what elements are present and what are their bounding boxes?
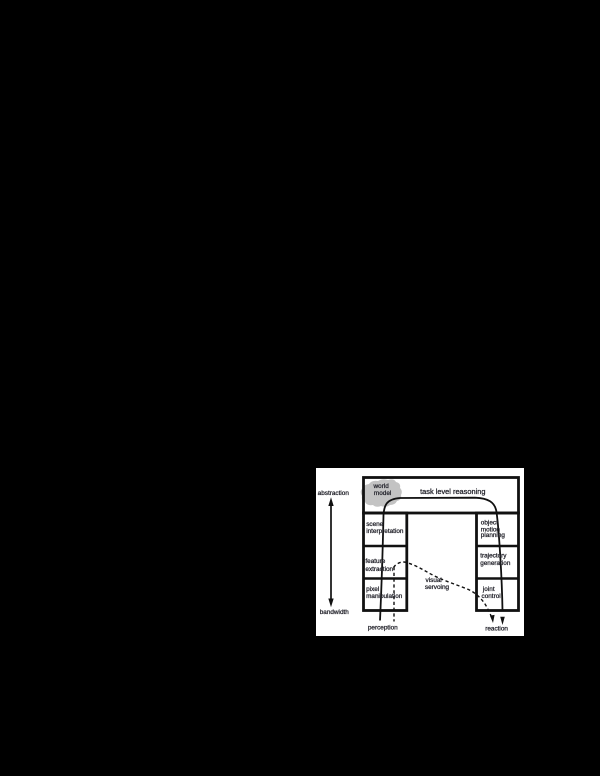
svg-text:generation: generation: [480, 560, 511, 567]
svg-text:feature: feature: [365, 558, 385, 565]
svg-text:abstraction: abstraction: [318, 490, 350, 497]
svg-text:planning: planning: [481, 532, 506, 539]
svg-text:model: model: [374, 490, 391, 497]
svg-text:servoing: servoing: [425, 584, 450, 591]
svg-text:trajectory: trajectory: [480, 552, 507, 559]
svg-text:perception: perception: [368, 625, 398, 632]
svg-text:reaction: reaction: [485, 626, 508, 633]
svg-text:world: world: [373, 483, 390, 490]
svg-text:interpretation: interpretation: [366, 528, 404, 535]
svg-text:extraction: extraction: [365, 566, 393, 573]
svg-text:control: control: [482, 593, 501, 600]
svg-text:joint: joint: [482, 586, 495, 593]
svg-text:task level reasoning: task level reasoning: [420, 487, 485, 496]
svg-text:manipulation: manipulation: [366, 593, 403, 600]
svg-text:bandwidth: bandwidth: [320, 609, 350, 616]
